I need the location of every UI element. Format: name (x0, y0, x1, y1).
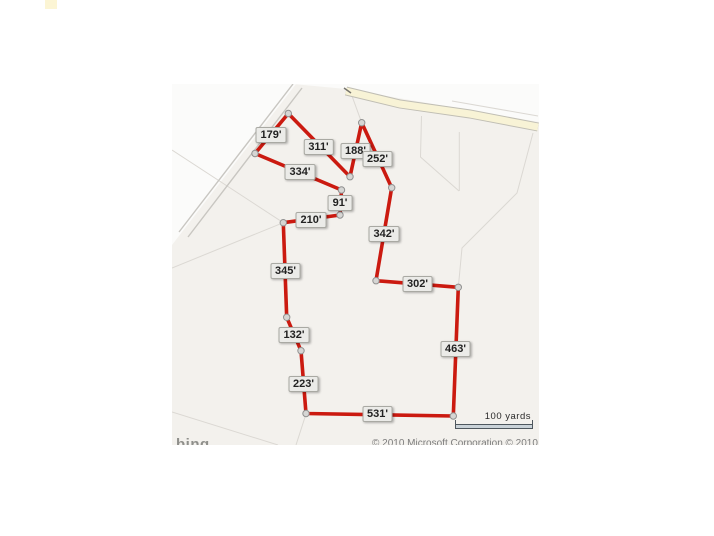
copyright-text: © 2010 Microsoft Corporation © 2010 NAVT… (372, 438, 539, 445)
measure-label-91: 91' (328, 195, 353, 211)
map-viewport[interactable]: 179' 311' 188' 252' 334' 91' 210' 342' 3… (172, 84, 539, 445)
vertex-handle[interactable] (347, 174, 353, 180)
vertex-handle[interactable] (337, 212, 343, 218)
page: { "page": { "marker_color": "#fcf5d4" },… (0, 0, 714, 536)
measure-label-345: 345' (270, 263, 301, 279)
measure-label-531: 531' (362, 406, 393, 422)
vertex-handle[interactable] (373, 278, 379, 284)
parcel-line (458, 133, 533, 287)
map-canvas (172, 84, 539, 445)
vertex-handle[interactable] (338, 187, 344, 193)
vertex-handle[interactable] (389, 185, 395, 191)
scale-bar: 100 yards (455, 411, 533, 431)
parcel-line (421, 116, 460, 191)
measure-label-210: 210' (296, 212, 327, 228)
scale-bar-label: 100 yards (485, 411, 531, 422)
vertex-handle[interactable] (285, 110, 291, 116)
parcel-line (352, 96, 362, 123)
measure-label-179: 179' (256, 127, 287, 143)
measure-label-311: 311' (303, 139, 333, 155)
vertex-handle[interactable] (252, 150, 258, 156)
vertex-handle[interactable] (303, 410, 309, 416)
parcel-line (296, 414, 306, 445)
measure-label-342: 342' (369, 226, 400, 242)
scale-bar-rule (455, 424, 533, 429)
vertex-handle[interactable] (284, 314, 290, 320)
vertex-handle[interactable] (298, 348, 304, 354)
measure-label-463: 463' (440, 341, 471, 357)
measure-label-302: 302' (402, 276, 433, 292)
measure-label-252: 252' (362, 151, 393, 167)
measure-label-132: 132' (279, 327, 310, 343)
measure-label-223: 223' (288, 376, 319, 392)
page-corner-marker (45, 0, 57, 9)
vertex-handle[interactable] (455, 284, 461, 290)
vertex-handle[interactable] (359, 120, 365, 126)
bing-logo[interactable]: bing (176, 436, 210, 445)
vertex-handle[interactable] (280, 220, 286, 226)
measure-label-334: 334' (285, 164, 316, 180)
parcel-line (172, 223, 283, 268)
